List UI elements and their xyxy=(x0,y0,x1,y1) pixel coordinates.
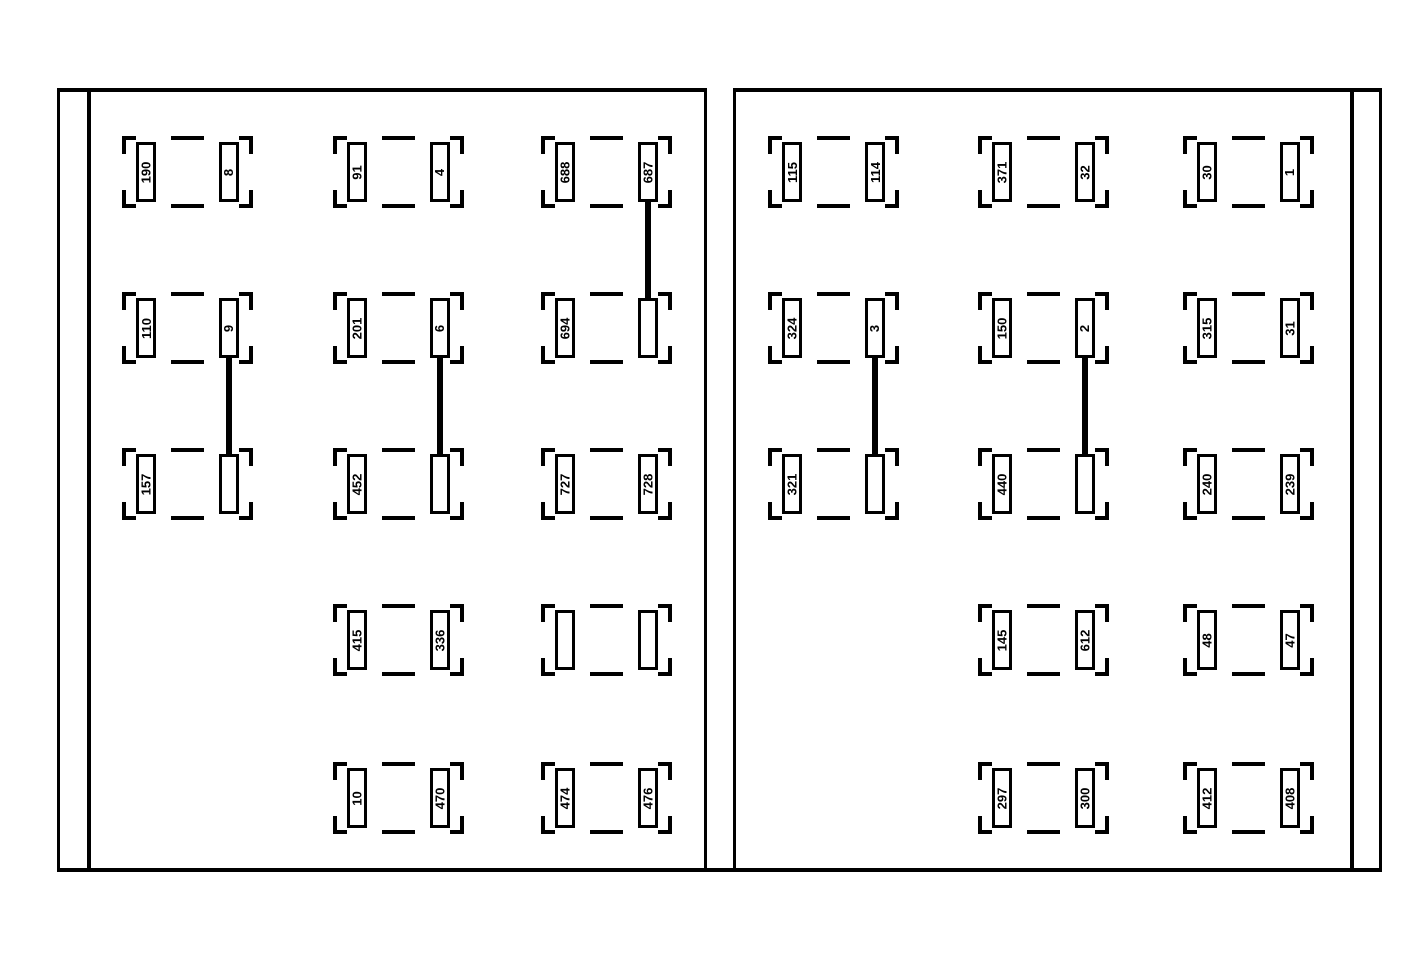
fuse-slot-right xyxy=(865,454,885,514)
connector-line xyxy=(1082,358,1088,454)
fuse-slot-right: 114 xyxy=(865,142,885,202)
bracket-corner-top-right xyxy=(1300,292,1314,310)
bracket-corner-bottom-right xyxy=(450,190,464,208)
fuse-number: 452 xyxy=(351,473,364,495)
bracket-corner-bottom-right xyxy=(1095,502,1109,520)
fuse-unit: 688687 xyxy=(541,136,672,208)
dashed-edge-top xyxy=(1027,604,1060,608)
bracket-corner-bottom-left xyxy=(1183,658,1197,676)
bracket-corner-top-left xyxy=(333,604,347,622)
bracket-corner-bottom-right xyxy=(450,816,464,834)
fuse-unit: 415336 xyxy=(333,604,464,676)
fuse-number: 10 xyxy=(351,791,364,805)
bracket-corner-top-left xyxy=(333,448,347,466)
bracket-corner-top-left xyxy=(333,136,347,154)
fuse-number: 1 xyxy=(1283,168,1296,175)
bracket-corner-bottom-left xyxy=(768,502,782,520)
dashed-edge-bottom xyxy=(1027,204,1060,208)
bracket-corner-bottom-right xyxy=(450,346,464,364)
fuse-unit: 412408 xyxy=(1183,762,1314,834)
fuse-number: 239 xyxy=(1284,473,1297,495)
fuse-unit: 37132 xyxy=(978,136,1109,208)
dashed-edge-bottom xyxy=(382,360,415,364)
bracket-corner-top-left xyxy=(978,292,992,310)
fuse-number: 201 xyxy=(351,317,364,339)
fuse-unit: 240239 xyxy=(1183,448,1314,520)
bracket-corner-bottom-left xyxy=(541,816,555,834)
connector-line xyxy=(226,358,232,454)
bracket-corner-bottom-left xyxy=(1183,502,1197,520)
fuse-slot-right: 8 xyxy=(219,142,239,202)
fuse-unit: 2016 xyxy=(333,292,464,364)
right-block-left-border xyxy=(733,88,736,872)
dashed-edge-top xyxy=(590,762,623,766)
dashed-edge-top xyxy=(1232,448,1265,452)
bracket-corner-top-left xyxy=(1183,604,1197,622)
bracket-corner-top-right xyxy=(450,762,464,780)
bracket-corner-top-left xyxy=(122,448,136,466)
dashed-edge-top xyxy=(1027,136,1060,140)
fuse-slot-left: 315 xyxy=(1197,298,1217,358)
fuse-number: 145 xyxy=(996,629,1009,651)
dashed-edge-bottom xyxy=(817,204,850,208)
fuse-number: 315 xyxy=(1201,317,1214,339)
dashed-edge-bottom xyxy=(1232,204,1265,208)
bracket-corner-bottom-left xyxy=(122,190,136,208)
dashed-edge-bottom xyxy=(817,516,850,520)
dashed-edge-bottom xyxy=(1232,360,1265,364)
bracket-corner-top-left xyxy=(1183,448,1197,466)
fuse-number: 408 xyxy=(1284,787,1297,809)
bracket-corner-top-right xyxy=(1300,604,1314,622)
fuse-slot-left: 321 xyxy=(782,454,802,514)
bracket-corner-top-right xyxy=(239,136,253,154)
dashed-edge-bottom xyxy=(590,204,623,208)
bracket-corner-top-right xyxy=(450,448,464,466)
bracket-corner-bottom-right xyxy=(1095,816,1109,834)
fuse-slot-left: 91 xyxy=(347,142,367,202)
fuse-unit: 1109 xyxy=(122,292,253,364)
fuse-slot-right xyxy=(219,454,239,514)
bracket-corner-bottom-left xyxy=(768,190,782,208)
bracket-corner-top-left xyxy=(1183,762,1197,780)
left-block-right-border xyxy=(704,88,707,872)
fuse-number: 9 xyxy=(222,324,235,331)
bracket-corner-top-right xyxy=(658,292,672,310)
left-block-top-border xyxy=(57,88,707,92)
dashed-edge-bottom xyxy=(382,830,415,834)
fuse-slot-left: 297 xyxy=(992,768,1012,828)
fuse-number: 91 xyxy=(351,165,364,179)
fuse-unit: 474476 xyxy=(541,762,672,834)
fuse-slot-right: 32 xyxy=(1075,142,1095,202)
dashed-edge-top xyxy=(590,448,623,452)
dashed-edge-top xyxy=(1027,292,1060,296)
bracket-corner-top-left xyxy=(541,604,555,622)
dashed-edge-bottom xyxy=(382,204,415,208)
bracket-corner-bottom-left xyxy=(978,502,992,520)
connector-line xyxy=(645,202,651,298)
fuse-slot-right xyxy=(1075,454,1095,514)
fuse-slot-left: 474 xyxy=(555,768,575,828)
dashed-edge-bottom xyxy=(590,516,623,520)
dashed-edge-bottom xyxy=(1232,516,1265,520)
bracket-corner-bottom-right xyxy=(239,190,253,208)
bracket-corner-top-right xyxy=(885,448,899,466)
bottom-border xyxy=(57,868,1382,872)
dashed-edge-bottom xyxy=(590,672,623,676)
fuse-unit: 321 xyxy=(768,448,899,520)
bracket-corner-bottom-right xyxy=(658,816,672,834)
bracket-corner-top-left xyxy=(122,136,136,154)
bracket-corner-top-right xyxy=(450,136,464,154)
bracket-corner-top-right xyxy=(1300,762,1314,780)
fuse-unit: 727728 xyxy=(541,448,672,520)
fuse-slot-right: 1 xyxy=(1280,142,1300,202)
fuse-slot-right: 300 xyxy=(1075,768,1095,828)
dashed-edge-top xyxy=(171,136,204,140)
fuse-slot-right xyxy=(638,610,658,670)
dashed-edge-top xyxy=(1027,448,1060,452)
bracket-corner-top-left xyxy=(768,448,782,466)
fuse-slot-right: 470 xyxy=(430,768,450,828)
dashed-edge-bottom xyxy=(1232,672,1265,676)
bracket-corner-top-left xyxy=(122,292,136,310)
bracket-corner-top-right xyxy=(1095,136,1109,154)
bracket-corner-bottom-right xyxy=(1300,658,1314,676)
dashed-edge-bottom xyxy=(1027,672,1060,676)
bracket-corner-bottom-right xyxy=(1300,816,1314,834)
fuse-slot-left: 324 xyxy=(782,298,802,358)
fuse-number: 31 xyxy=(1284,321,1297,335)
bracket-corner-bottom-left xyxy=(333,658,347,676)
fuse-number: 612 xyxy=(1079,629,1092,651)
bracket-corner-bottom-right xyxy=(658,346,672,364)
fuse-slot-right: 687 xyxy=(638,142,658,202)
fuse-number: 727 xyxy=(559,473,572,495)
fuse-number: 157 xyxy=(140,473,153,495)
bracket-corner-bottom-left xyxy=(333,346,347,364)
dashed-edge-top xyxy=(171,292,204,296)
fuse-number: 114 xyxy=(869,162,882,183)
fuse-unit: 1502 xyxy=(978,292,1109,364)
fuse-slot-right: 408 xyxy=(1280,768,1300,828)
dashed-edge-top xyxy=(817,292,850,296)
bracket-corner-bottom-left xyxy=(978,190,992,208)
bracket-corner-top-right xyxy=(239,448,253,466)
left-block-inner-divider xyxy=(87,88,91,872)
fuse-number: 415 xyxy=(351,629,364,651)
fuse-slot-right: 3 xyxy=(865,298,885,358)
fuse-unit: 115114 xyxy=(768,136,899,208)
fuse-number: 694 xyxy=(559,317,572,339)
fuse-unit: 694 xyxy=(541,292,672,364)
fuse-diagram: 1908914688687110920166941574527277284153… xyxy=(0,0,1427,960)
fuse-slot-left: 190 xyxy=(136,142,156,202)
fuse-unit: 145612 xyxy=(978,604,1109,676)
bracket-corner-bottom-right xyxy=(1095,658,1109,676)
fuse-unit: 10470 xyxy=(333,762,464,834)
bracket-corner-top-right xyxy=(658,604,672,622)
bracket-corner-bottom-right xyxy=(1300,346,1314,364)
fuse-slot-left: 145 xyxy=(992,610,1012,670)
fuse-slot-right: 2 xyxy=(1075,298,1095,358)
dashed-edge-top xyxy=(1232,292,1265,296)
dashed-edge-bottom xyxy=(382,672,415,676)
fuse-slot-left: 415 xyxy=(347,610,367,670)
bracket-corner-top-left xyxy=(333,292,347,310)
fuse-unit: 440 xyxy=(978,448,1109,520)
fuse-number: 371 xyxy=(996,161,1009,183)
fuse-number: 150 xyxy=(996,317,1009,339)
dashed-edge-bottom xyxy=(171,360,204,364)
fuse-number: 2 xyxy=(1078,324,1091,331)
bracket-corner-bottom-right xyxy=(239,502,253,520)
bracket-corner-top-left xyxy=(768,292,782,310)
bracket-corner-bottom-left xyxy=(1183,346,1197,364)
dashed-edge-top xyxy=(817,136,850,140)
bracket-corner-top-left xyxy=(978,136,992,154)
bracket-corner-bottom-right xyxy=(885,502,899,520)
dashed-edge-bottom xyxy=(1027,516,1060,520)
bracket-corner-top-left xyxy=(978,448,992,466)
bracket-corner-bottom-right xyxy=(885,190,899,208)
dashed-edge-top xyxy=(382,762,415,766)
fuse-unit: 301 xyxy=(1183,136,1314,208)
bracket-corner-bottom-left xyxy=(768,346,782,364)
dashed-edge-bottom xyxy=(382,516,415,520)
dashed-edge-top xyxy=(1232,604,1265,608)
fuse-slot-right: 9 xyxy=(219,298,239,358)
fuse-number: 8 xyxy=(222,168,235,175)
bracket-corner-top-right xyxy=(1300,136,1314,154)
bracket-corner-bottom-right xyxy=(239,346,253,364)
bracket-corner-bottom-left xyxy=(333,502,347,520)
bracket-corner-top-right xyxy=(450,292,464,310)
fuse-slot-left: 694 xyxy=(555,298,575,358)
bracket-corner-bottom-right xyxy=(1300,190,1314,208)
bracket-corner-top-left xyxy=(541,762,555,780)
dashed-edge-top xyxy=(382,448,415,452)
dashed-edge-bottom xyxy=(1027,830,1060,834)
fuse-number: 474 xyxy=(559,787,572,809)
bracket-corner-top-right xyxy=(658,448,672,466)
dashed-edge-top xyxy=(1232,762,1265,766)
fuse-unit: 914 xyxy=(333,136,464,208)
bracket-corner-top-right xyxy=(885,292,899,310)
fuse-number: 240 xyxy=(1201,473,1214,495)
fuse-number: 3 xyxy=(868,324,881,331)
fuse-number: 324 xyxy=(786,317,799,339)
fuse-slot-right: 612 xyxy=(1075,610,1095,670)
bracket-corner-top-right xyxy=(658,762,672,780)
fuse-slot-left: 452 xyxy=(347,454,367,514)
bracket-corner-bottom-left xyxy=(122,502,136,520)
dashed-edge-bottom xyxy=(171,204,204,208)
bracket-corner-top-right xyxy=(239,292,253,310)
fuse-number: 30 xyxy=(1201,165,1214,179)
fuse-number: 412 xyxy=(1201,787,1214,809)
fuse-slot-left: 10 xyxy=(347,768,367,828)
connector-line xyxy=(872,358,878,454)
bracket-corner-top-left xyxy=(333,762,347,780)
fuse-slot-left: 240 xyxy=(1197,454,1217,514)
dashed-edge-top xyxy=(590,136,623,140)
bracket-corner-bottom-right xyxy=(450,658,464,676)
fuse-number: 300 xyxy=(1079,787,1092,809)
dashed-edge-top xyxy=(382,136,415,140)
dashed-edge-bottom xyxy=(1232,830,1265,834)
bracket-corner-bottom-right xyxy=(658,190,672,208)
dashed-edge-top xyxy=(382,604,415,608)
right-block-inner-divider xyxy=(1350,88,1354,872)
fuse-slot-left: 150 xyxy=(992,298,1012,358)
fuse-slot-right: 31 xyxy=(1280,298,1300,358)
bracket-corner-bottom-right xyxy=(658,658,672,676)
fuse-number: 297 xyxy=(996,787,1009,809)
fuse-number: 190 xyxy=(140,161,153,183)
fuse-slot-left xyxy=(555,610,575,670)
dashed-edge-bottom xyxy=(171,516,204,520)
bracket-corner-top-left xyxy=(978,604,992,622)
fuse-slot-right: 476 xyxy=(638,768,658,828)
bracket-corner-top-right xyxy=(1095,292,1109,310)
bracket-corner-top-left xyxy=(541,448,555,466)
fuse-number: 4 xyxy=(433,168,446,175)
dashed-edge-bottom xyxy=(590,360,623,364)
dashed-edge-top xyxy=(817,448,850,452)
bracket-corner-top-right xyxy=(885,136,899,154)
dashed-edge-bottom xyxy=(817,360,850,364)
dashed-edge-top xyxy=(171,448,204,452)
bracket-corner-bottom-left xyxy=(1183,190,1197,208)
fuse-number: 48 xyxy=(1201,633,1214,647)
fuse-number: 321 xyxy=(786,473,799,495)
fuse-slot-right xyxy=(430,454,450,514)
bracket-corner-bottom-left xyxy=(122,346,136,364)
fuse-number: 110 xyxy=(140,318,153,339)
bracket-corner-top-right xyxy=(1095,448,1109,466)
fuse-slot-left: 440 xyxy=(992,454,1012,514)
fuse-slot-left: 115 xyxy=(782,142,802,202)
connector-line xyxy=(437,358,443,454)
bracket-corner-top-right xyxy=(1095,604,1109,622)
bracket-corner-bottom-right xyxy=(1095,346,1109,364)
fuse-number: 470 xyxy=(434,787,447,809)
fuse-slot-left: 727 xyxy=(555,454,575,514)
fuse-unit: 297300 xyxy=(978,762,1109,834)
bracket-corner-top-right xyxy=(450,604,464,622)
fuse-slot-right: 47 xyxy=(1280,610,1300,670)
bracket-corner-bottom-left xyxy=(978,658,992,676)
fuse-number: 47 xyxy=(1284,633,1297,647)
bracket-corner-top-left xyxy=(978,762,992,780)
bracket-corner-bottom-left xyxy=(541,346,555,364)
bracket-corner-top-left xyxy=(768,136,782,154)
bracket-corner-top-left xyxy=(1183,292,1197,310)
bracket-corner-bottom-right xyxy=(885,346,899,364)
bracket-corner-bottom-right xyxy=(658,502,672,520)
fuse-number: 687 xyxy=(642,161,655,183)
bracket-corner-top-left xyxy=(541,292,555,310)
bracket-corner-top-right xyxy=(1095,762,1109,780)
fuse-number: 728 xyxy=(642,473,655,495)
bracket-corner-bottom-left xyxy=(541,502,555,520)
fuse-number: 688 xyxy=(559,161,572,183)
left-block-left-border xyxy=(57,88,60,872)
fuse-unit: 4847 xyxy=(1183,604,1314,676)
bracket-corner-top-left xyxy=(1183,136,1197,154)
dashed-edge-top xyxy=(1232,136,1265,140)
fuse-number: 32 xyxy=(1079,165,1092,179)
fuse-slot-left: 110 xyxy=(136,298,156,358)
bracket-corner-bottom-left xyxy=(541,658,555,676)
bracket-corner-bottom-right xyxy=(1300,502,1314,520)
dashed-edge-bottom xyxy=(590,830,623,834)
fuse-slot-right: 336 xyxy=(430,610,450,670)
bracket-corner-top-left xyxy=(541,136,555,154)
fuse-unit: 157 xyxy=(122,448,253,520)
fuse-slot-right: 239 xyxy=(1280,454,1300,514)
fuse-slot-left: 688 xyxy=(555,142,575,202)
dashed-edge-top xyxy=(590,292,623,296)
fuse-unit xyxy=(541,604,672,676)
fuse-number: 336 xyxy=(434,629,447,651)
right-block-top-border xyxy=(733,88,1382,92)
bracket-corner-bottom-left xyxy=(978,816,992,834)
dashed-edge-top xyxy=(1027,762,1060,766)
bracket-corner-bottom-left xyxy=(541,190,555,208)
fuse-unit: 452 xyxy=(333,448,464,520)
dashed-edge-top xyxy=(382,292,415,296)
fuse-slot-right xyxy=(638,298,658,358)
fuse-unit: 31531 xyxy=(1183,292,1314,364)
right-block-right-border xyxy=(1379,88,1382,872)
fuse-slot-left: 412 xyxy=(1197,768,1217,828)
fuse-number: 440 xyxy=(996,473,1009,495)
bracket-corner-bottom-left xyxy=(1183,816,1197,834)
fuse-slot-left: 48 xyxy=(1197,610,1217,670)
fuse-slot-right: 728 xyxy=(638,454,658,514)
bracket-corner-bottom-left xyxy=(333,190,347,208)
fuse-number: 476 xyxy=(642,787,655,809)
dashed-edge-top xyxy=(590,604,623,608)
dashed-edge-bottom xyxy=(1027,360,1060,364)
fuse-slot-right: 4 xyxy=(430,142,450,202)
bracket-corner-bottom-right xyxy=(450,502,464,520)
bracket-corner-bottom-left xyxy=(978,346,992,364)
fuse-slot-right: 6 xyxy=(430,298,450,358)
fuse-unit: 3243 xyxy=(768,292,899,364)
fuse-unit: 1908 xyxy=(122,136,253,208)
fuse-slot-left: 30 xyxy=(1197,142,1217,202)
fuse-number: 6 xyxy=(433,324,446,331)
fuse-slot-left: 371 xyxy=(992,142,1012,202)
fuse-slot-left: 201 xyxy=(347,298,367,358)
fuse-slot-left: 157 xyxy=(136,454,156,514)
bracket-corner-top-right xyxy=(1300,448,1314,466)
bracket-corner-bottom-left xyxy=(333,816,347,834)
bracket-corner-top-right xyxy=(658,136,672,154)
bracket-corner-bottom-right xyxy=(1095,190,1109,208)
fuse-number: 115 xyxy=(786,162,799,183)
